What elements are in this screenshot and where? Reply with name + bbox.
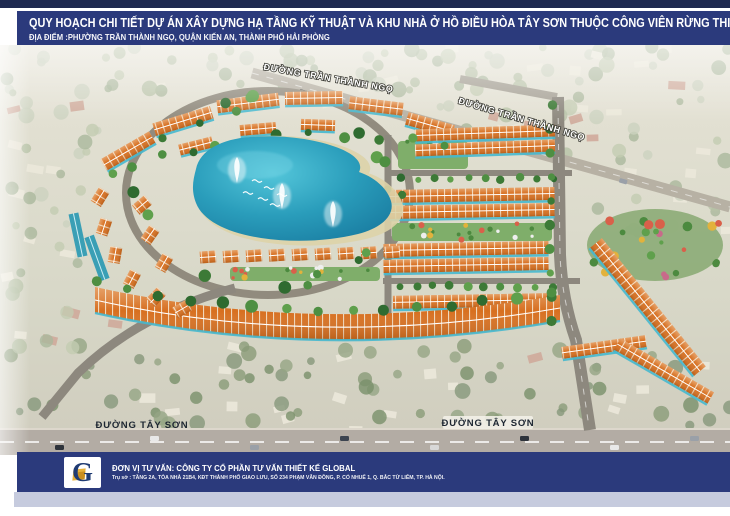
tree: [441, 142, 449, 150]
planting: [421, 233, 427, 239]
garden-planting: [647, 251, 655, 259]
tree: [546, 316, 556, 326]
fountain: [228, 157, 246, 183]
context-tree: [338, 343, 353, 358]
planting: [487, 227, 492, 232]
villa: [223, 250, 240, 263]
context-tree: [307, 357, 315, 365]
context-tree: [280, 359, 293, 372]
planting: [405, 140, 409, 144]
house-row: [389, 203, 554, 221]
garden-planting: [659, 240, 663, 244]
tree: [190, 148, 198, 156]
tree: [379, 156, 390, 167]
tree: [143, 209, 154, 220]
planting: [418, 222, 424, 228]
context-tree: [78, 135, 93, 150]
context-tree: [304, 372, 312, 380]
tree: [479, 283, 488, 292]
tree: [447, 301, 457, 311]
context-tree: [245, 373, 255, 383]
garden-planting: [620, 230, 626, 236]
context-house: [587, 134, 599, 141]
tree: [445, 281, 454, 290]
context-tree: [592, 202, 604, 214]
tree: [516, 173, 524, 181]
tree: [547, 269, 554, 276]
context-tree: [66, 341, 79, 354]
tree: [109, 169, 118, 178]
planting: [463, 223, 468, 228]
tree: [378, 305, 389, 316]
garden-planting: [661, 271, 667, 277]
planting: [427, 232, 433, 238]
context-tree: [631, 194, 642, 205]
villa: [338, 247, 355, 260]
planting: [231, 276, 234, 279]
consultant-address: Trụ sở : TẦNG 2A, TÒA NHÀ 21B4, KĐT THÀN…: [112, 474, 445, 482]
tree: [511, 292, 523, 304]
planting: [468, 235, 473, 240]
fountain: [324, 201, 342, 227]
tree: [158, 150, 167, 159]
tree: [127, 186, 139, 198]
house-row: [383, 241, 548, 259]
house-row: [389, 187, 554, 205]
villa: [200, 250, 217, 263]
tree: [374, 135, 384, 145]
tree: [412, 302, 422, 312]
context-tree: [703, 413, 716, 426]
garden-planting: [683, 222, 693, 232]
car: [150, 436, 159, 441]
left-fade: [0, 45, 30, 455]
tree: [545, 244, 555, 254]
garden-planting: [712, 260, 719, 267]
context-tree: [226, 353, 242, 369]
tree: [355, 256, 363, 264]
context-tree: [416, 409, 425, 418]
planting: [467, 231, 471, 235]
context-tree: [485, 371, 497, 383]
context-tree: [241, 346, 256, 361]
planting: [239, 269, 244, 274]
context-tree: [50, 206, 59, 215]
context-tree: [219, 379, 230, 390]
planting: [458, 237, 464, 243]
context-house: [227, 402, 238, 412]
tree: [408, 133, 417, 142]
context-tree: [274, 396, 289, 411]
garden-planting: [715, 220, 722, 227]
villa: [269, 249, 286, 262]
plan-title: QUY HOẠCH CHI TIẾT DỰ ÁN XÂY DỰNG HẠ TẦN…: [29, 14, 730, 31]
context-tree: [86, 124, 99, 137]
tree: [482, 174, 490, 182]
tree: [496, 176, 504, 184]
tree: [185, 296, 196, 307]
garden-planting: [653, 229, 659, 235]
tree: [548, 173, 555, 180]
tree: [362, 248, 371, 257]
context-tree: [417, 345, 430, 358]
house-row: [383, 257, 548, 275]
context-tree: [455, 383, 471, 399]
context-tree: [63, 220, 70, 227]
garden-planting: [639, 237, 645, 243]
context-tree: [364, 346, 377, 359]
tree: [414, 283, 422, 291]
aerial-rendering: ĐƯỜNG TRẦN THÀNH NGỌ ĐƯỜNG TRẦN THÀNH NG…: [0, 45, 730, 455]
context-tree: [653, 406, 669, 422]
tree: [431, 174, 439, 182]
tree: [127, 162, 137, 172]
context-tree: [457, 339, 472, 354]
car: [610, 445, 619, 450]
global-logo: G: [64, 457, 101, 488]
context-tree: [524, 388, 536, 400]
tree: [466, 174, 473, 181]
lake-highlight: [217, 151, 293, 179]
tree: [245, 300, 258, 313]
context-tree: [245, 413, 260, 428]
tree: [199, 270, 211, 282]
tree: [158, 134, 166, 142]
planting: [232, 267, 238, 273]
context-house: [721, 227, 730, 235]
context-tree: [55, 242, 65, 252]
tree: [547, 288, 557, 298]
context-tree: [557, 408, 565, 416]
car: [340, 436, 349, 441]
plan-location: ĐỊA ĐIỂM :PHƯỜNG TRẦN THÀNH NGỌ, QUẬN KI…: [29, 32, 660, 42]
top-border-strip: [0, 0, 730, 8]
tree: [217, 296, 229, 308]
planting: [457, 232, 461, 236]
villa: [292, 248, 309, 261]
context-tree: [393, 370, 402, 379]
footer-text: ĐƠN VỊ TƯ VẤN: CÔNG TY CỔ PHẦN TƯ VẤN TH…: [112, 463, 474, 482]
tree: [282, 304, 291, 313]
car: [430, 445, 439, 450]
planting: [428, 227, 432, 231]
tree: [397, 283, 404, 290]
tree: [313, 270, 321, 278]
tree: [464, 282, 473, 291]
context-tree: [643, 150, 653, 160]
tree: [353, 127, 365, 139]
planting: [479, 227, 485, 233]
tree: [533, 175, 540, 182]
planting: [241, 274, 247, 280]
tree: [153, 291, 163, 301]
context-tree: [612, 144, 626, 158]
tree: [513, 283, 522, 292]
tree: [547, 197, 554, 204]
garden-planting: [682, 247, 687, 252]
planting: [289, 266, 293, 270]
context-tree: [234, 369, 246, 381]
context-house: [139, 393, 155, 403]
villa: [384, 246, 401, 259]
tree: [496, 283, 504, 291]
planting: [314, 266, 318, 270]
planting: [339, 269, 343, 273]
tree: [339, 132, 350, 143]
title-banner: QUY HOẠCH CHI TIẾT DỰ ÁN XÂY DỰNG HẠ TẦN…: [17, 11, 730, 45]
tree: [278, 281, 291, 294]
context-tree: [169, 373, 180, 384]
tree: [303, 281, 312, 290]
planting: [299, 271, 302, 274]
tree: [123, 285, 131, 293]
tree: [447, 176, 453, 182]
context-tree: [40, 334, 53, 347]
tree: [313, 307, 322, 316]
tree: [397, 174, 405, 182]
context-tree: [450, 351, 461, 362]
tree: [477, 295, 488, 306]
context-house: [424, 368, 437, 379]
footer-bar: G ĐƠN VỊ TƯ VẤN: CÔNG TY CỔ PHẦN TƯ VẤN …: [17, 452, 730, 492]
tree: [546, 148, 555, 157]
context-house: [685, 168, 696, 178]
consultant-name: ĐƠN VỊ TƯ VẤN: CÔNG TY CỔ PHẦN TƯ VẤN TH…: [112, 463, 445, 474]
context-tree: [34, 187, 49, 202]
context-tree: [104, 394, 118, 408]
car: [520, 436, 529, 441]
context-tree: [60, 306, 73, 319]
planting: [496, 229, 499, 232]
context-tree: [286, 411, 295, 420]
tree: [92, 276, 102, 286]
logo-letter: G: [72, 459, 93, 486]
planting: [409, 223, 415, 229]
garden-planting: [644, 220, 653, 229]
context-tree: [73, 258, 83, 268]
context-house: [636, 385, 649, 394]
garden-planting: [605, 216, 614, 225]
context-tree: [593, 382, 607, 396]
context-tree: [589, 364, 601, 376]
context-tree: [134, 354, 144, 364]
context-tree: [264, 365, 273, 374]
context-tree: [76, 185, 86, 195]
context-tree: [56, 170, 65, 179]
context-tree: [190, 392, 202, 404]
planting: [245, 267, 250, 272]
context-tree: [460, 366, 474, 380]
garden-planting: [655, 219, 665, 229]
bottom-accent-strip: [14, 492, 730, 507]
villa: [315, 247, 332, 260]
planting: [530, 235, 533, 238]
garden-planting: [673, 270, 679, 276]
tree: [532, 284, 539, 291]
planting: [512, 235, 517, 240]
context-tree: [359, 379, 374, 394]
tree: [415, 177, 421, 183]
context-tree: [496, 362, 504, 370]
planting: [530, 226, 535, 231]
planting: [366, 269, 370, 273]
context-tree: [628, 123, 640, 135]
context-tree: [713, 137, 721, 145]
tree: [305, 129, 312, 136]
road-label-tay-son-1: ĐƯỜNG TÂY SƠN: [96, 419, 189, 431]
car: [690, 436, 699, 441]
planning-poster: QUY HOẠCH CHI TIẾT DỰ ÁN XÂY DỰNG HẠ TẦN…: [0, 0, 730, 516]
park-strip: [230, 267, 380, 281]
context-tree: [154, 358, 161, 365]
car: [250, 445, 259, 450]
tree: [429, 282, 436, 289]
context-tree: [129, 389, 141, 401]
villa: [246, 249, 263, 262]
road-label-tay-son-2: ĐƯỜNG TÂY SƠN: [442, 417, 535, 429]
context-tree: [372, 410, 387, 425]
car: [55, 445, 64, 450]
tree: [545, 220, 555, 230]
planting: [338, 277, 342, 281]
planting: [515, 221, 520, 226]
tree: [349, 306, 358, 315]
